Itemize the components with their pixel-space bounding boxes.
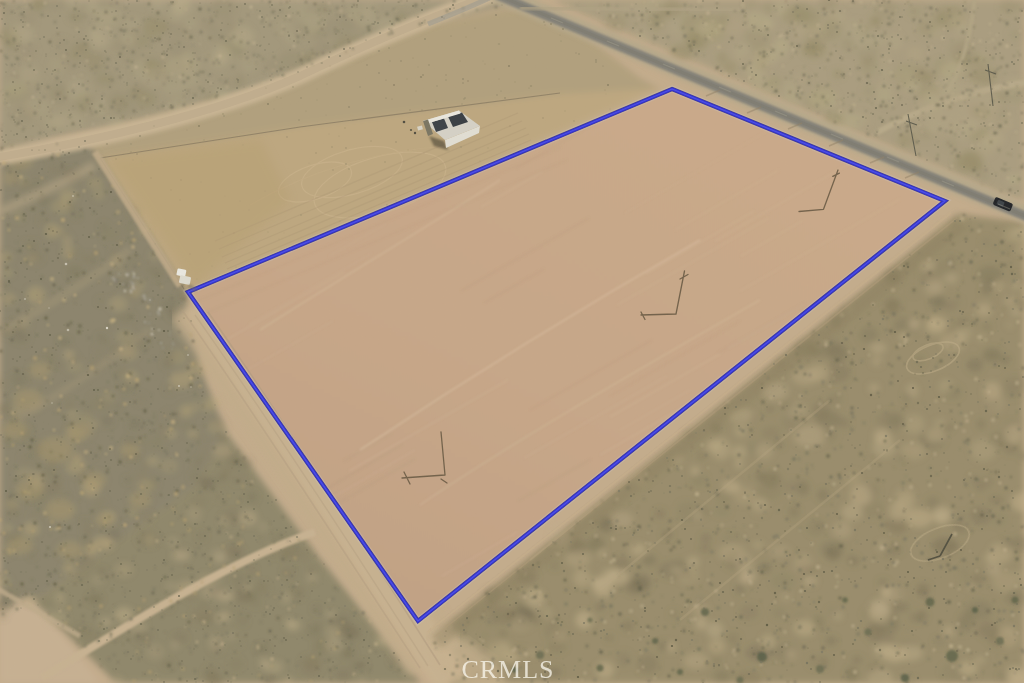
svg-text:CRMLS: CRMLS: [461, 655, 554, 683]
